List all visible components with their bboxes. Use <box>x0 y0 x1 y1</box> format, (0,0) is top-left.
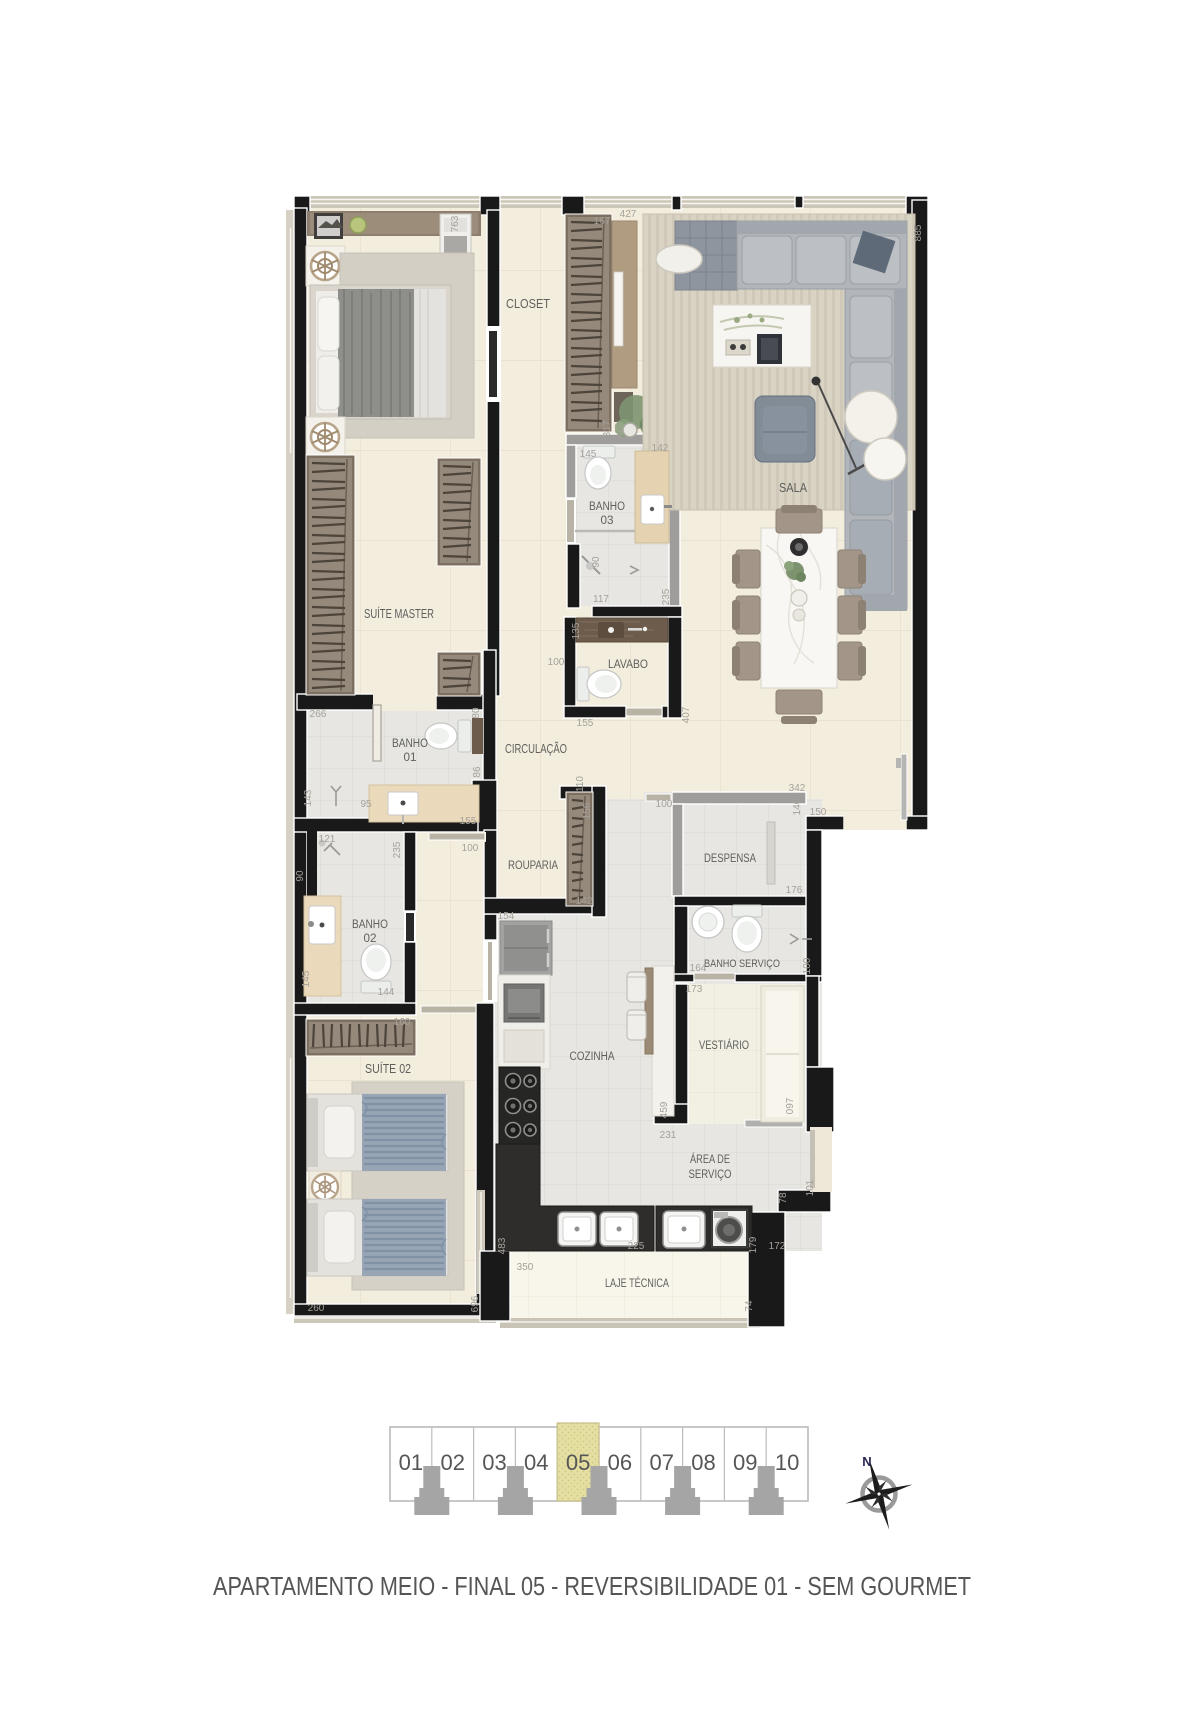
svg-text:DESPENSA: DESPENSA <box>704 853 756 865</box>
svg-text:350: 350 <box>517 1262 534 1273</box>
svg-text:150: 150 <box>810 807 827 818</box>
svg-text:459: 459 <box>659 1101 670 1118</box>
svg-text:LAJE TÉCNICA: LAJE TÉCNICA <box>605 1277 669 1290</box>
svg-text:100: 100 <box>462 843 479 854</box>
svg-text:135: 135 <box>571 622 582 639</box>
svg-text:176: 176 <box>786 885 803 896</box>
svg-text:117: 117 <box>593 594 609 605</box>
svg-text:173: 173 <box>686 984 703 995</box>
svg-text:483: 483 <box>497 1237 508 1254</box>
svg-text:322: 322 <box>614 422 625 439</box>
svg-text:90: 90 <box>295 870 306 882</box>
svg-text:143: 143 <box>303 789 314 806</box>
svg-text:10: 10 <box>775 1450 799 1475</box>
svg-text:167: 167 <box>594 216 611 227</box>
svg-text:145: 145 <box>301 970 312 987</box>
svg-text:121: 121 <box>319 834 336 845</box>
svg-text:78: 78 <box>778 1192 789 1204</box>
svg-text:02: 02 <box>440 1450 464 1475</box>
svg-text:266: 266 <box>310 709 327 720</box>
svg-text:235: 235 <box>661 588 672 605</box>
svg-text:144: 144 <box>378 987 395 998</box>
svg-text:03: 03 <box>601 515 614 527</box>
svg-text:407: 407 <box>681 706 692 723</box>
svg-text:172: 172 <box>769 1241 786 1252</box>
svg-text:N: N <box>862 1454 871 1469</box>
svg-text:145: 145 <box>580 449 597 460</box>
svg-text:07: 07 <box>649 1450 673 1475</box>
svg-text:097: 097 <box>785 1097 796 1114</box>
svg-text:342: 342 <box>789 783 806 794</box>
svg-text:164: 164 <box>690 963 707 974</box>
svg-text:05: 05 <box>566 1450 590 1475</box>
svg-text:SALA: SALA <box>779 481 808 495</box>
svg-text:ÁREA DE: ÁREA DE <box>690 1153 730 1166</box>
svg-text:155: 155 <box>577 718 594 729</box>
svg-text:155: 155 <box>460 816 477 827</box>
svg-text:317: 317 <box>602 420 613 437</box>
svg-text:156: 156 <box>582 802 593 819</box>
svg-text:885: 885 <box>913 224 924 241</box>
svg-text:80: 80 <box>471 707 482 719</box>
svg-text:100: 100 <box>548 657 565 668</box>
svg-text:03: 03 <box>482 1450 506 1475</box>
svg-text:110: 110 <box>575 776 586 792</box>
svg-text:90: 90 <box>591 556 602 568</box>
svg-text:CLOSET: CLOSET <box>506 297 550 311</box>
svg-text:74: 74 <box>744 1300 755 1312</box>
svg-text:COZINHA: COZINHA <box>570 1051 615 1063</box>
svg-text:100: 100 <box>656 799 673 810</box>
svg-text:SUÍTE MASTER: SUÍTE MASTER <box>364 606 434 621</box>
svg-text:101: 101 <box>805 1179 816 1196</box>
svg-text:BANHO: BANHO <box>589 501 625 513</box>
svg-text:LAVABO: LAVABO <box>608 659 648 671</box>
svg-text:04: 04 <box>524 1450 548 1475</box>
svg-text:140: 140 <box>792 798 803 815</box>
svg-text:763: 763 <box>450 215 461 232</box>
svg-text:BANHO: BANHO <box>392 738 428 750</box>
svg-text:95: 95 <box>360 799 372 810</box>
svg-text:06: 06 <box>608 1450 632 1475</box>
svg-text:100: 100 <box>802 957 813 974</box>
svg-text:427: 427 <box>620 209 637 220</box>
svg-text:01: 01 <box>404 752 417 764</box>
svg-text:142: 142 <box>652 443 669 454</box>
svg-text:CIRCULAÇÃO: CIRCULAÇÃO <box>505 742 567 756</box>
svg-text:ROUPARIA: ROUPARIA <box>508 860 558 872</box>
svg-text:160: 160 <box>394 1017 411 1028</box>
svg-text:696: 696 <box>470 1295 481 1312</box>
svg-text:179: 179 <box>748 1236 759 1253</box>
svg-text:09: 09 <box>733 1450 757 1475</box>
svg-text:235: 235 <box>392 841 403 858</box>
svg-text:86: 86 <box>472 766 483 778</box>
svg-text:01: 01 <box>399 1450 423 1475</box>
svg-text:02: 02 <box>364 933 377 945</box>
svg-text:APARTAMENTO MEIO - FINAL 05 -: APARTAMENTO MEIO - FINAL 05 - REVERSIBIL… <box>213 1571 971 1601</box>
svg-text:BANHO: BANHO <box>352 919 388 931</box>
svg-text:231: 231 <box>660 1130 677 1141</box>
svg-text:225: 225 <box>628 1241 645 1252</box>
svg-text:BANHO SERVIÇO: BANHO SERVIÇO <box>704 958 780 970</box>
svg-text:260: 260 <box>308 1303 325 1314</box>
svg-text:SERVIÇO: SERVIÇO <box>689 1169 732 1181</box>
svg-text:142: 142 <box>576 896 593 907</box>
svg-text:VESTIÁRIO: VESTIÁRIO <box>699 1039 749 1052</box>
svg-text:SUÍTE 02: SUÍTE 02 <box>365 1061 411 1076</box>
svg-text:154: 154 <box>498 911 515 922</box>
svg-text:08: 08 <box>691 1450 715 1475</box>
